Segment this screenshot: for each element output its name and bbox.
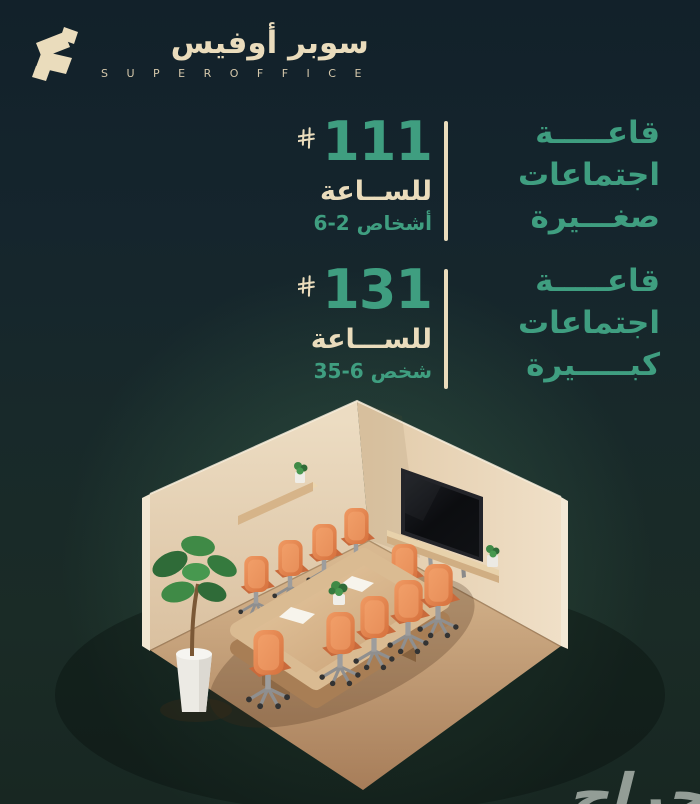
right-wall-edge: [561, 497, 568, 649]
meeting-room-illustration: [0, 0, 700, 804]
haraj-watermark: حراج: [565, 766, 700, 804]
poster-canvas: سوبر أوفيس S U P E R O F F I C E قاعــــ…: [0, 0, 700, 804]
left-wall-edge: [142, 494, 150, 651]
